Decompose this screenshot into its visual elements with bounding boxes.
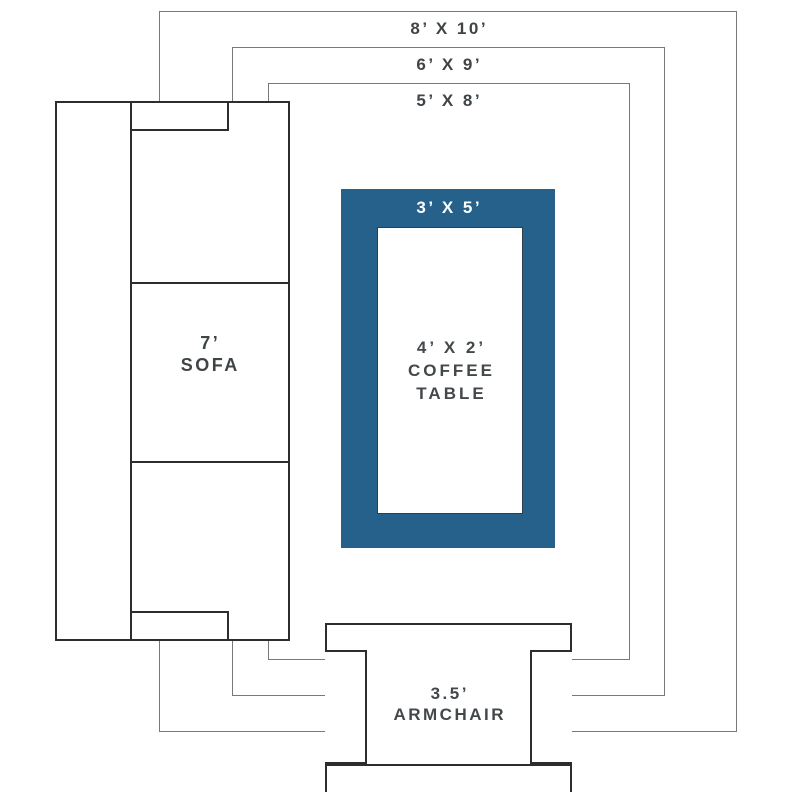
rug-3x5: 3’ X 5’ 4’ X 2’ COFFEE TABLE xyxy=(341,189,555,548)
armchair-label: 3.5’ ARMCHAIR xyxy=(327,683,570,725)
coffee-table: 4’ X 2’ COFFEE TABLE xyxy=(377,227,523,514)
armchair: 3.5’ ARMCHAIR xyxy=(325,623,572,792)
armchair-name-label: ARMCHAIR xyxy=(327,704,570,725)
sofa-armrest-top xyxy=(130,103,229,131)
rug-8x10-label: 8’ X 10’ xyxy=(159,11,737,47)
coffee-table-name-line2: TABLE xyxy=(413,382,486,405)
sofa-armrest-bottom xyxy=(130,611,229,639)
sofa: 7’ SOFA xyxy=(55,101,290,641)
sofa-seat-divider-2 xyxy=(130,461,288,463)
sofa-label: 7’ SOFA xyxy=(130,332,288,376)
armchair-size-label: 3.5’ xyxy=(327,683,570,704)
rug-3x5-label: 3’ X 5’ xyxy=(341,189,555,227)
sofa-name-label: SOFA xyxy=(130,354,288,376)
rug-6x9-label: 6’ X 9’ xyxy=(159,47,737,83)
coffee-table-name-line1: COFFEE xyxy=(405,359,495,382)
coffee-table-size-label: 4’ X 2’ xyxy=(414,336,486,359)
armchair-front-line xyxy=(325,764,572,766)
sofa-size-label: 7’ xyxy=(130,332,288,354)
rug-size-diagram: 8’ X 10’ 6’ X 9’ 5’ X 8’ 3’ X 5’ 4’ X 2’… xyxy=(0,0,792,792)
sofa-seat-divider-1 xyxy=(130,282,288,284)
